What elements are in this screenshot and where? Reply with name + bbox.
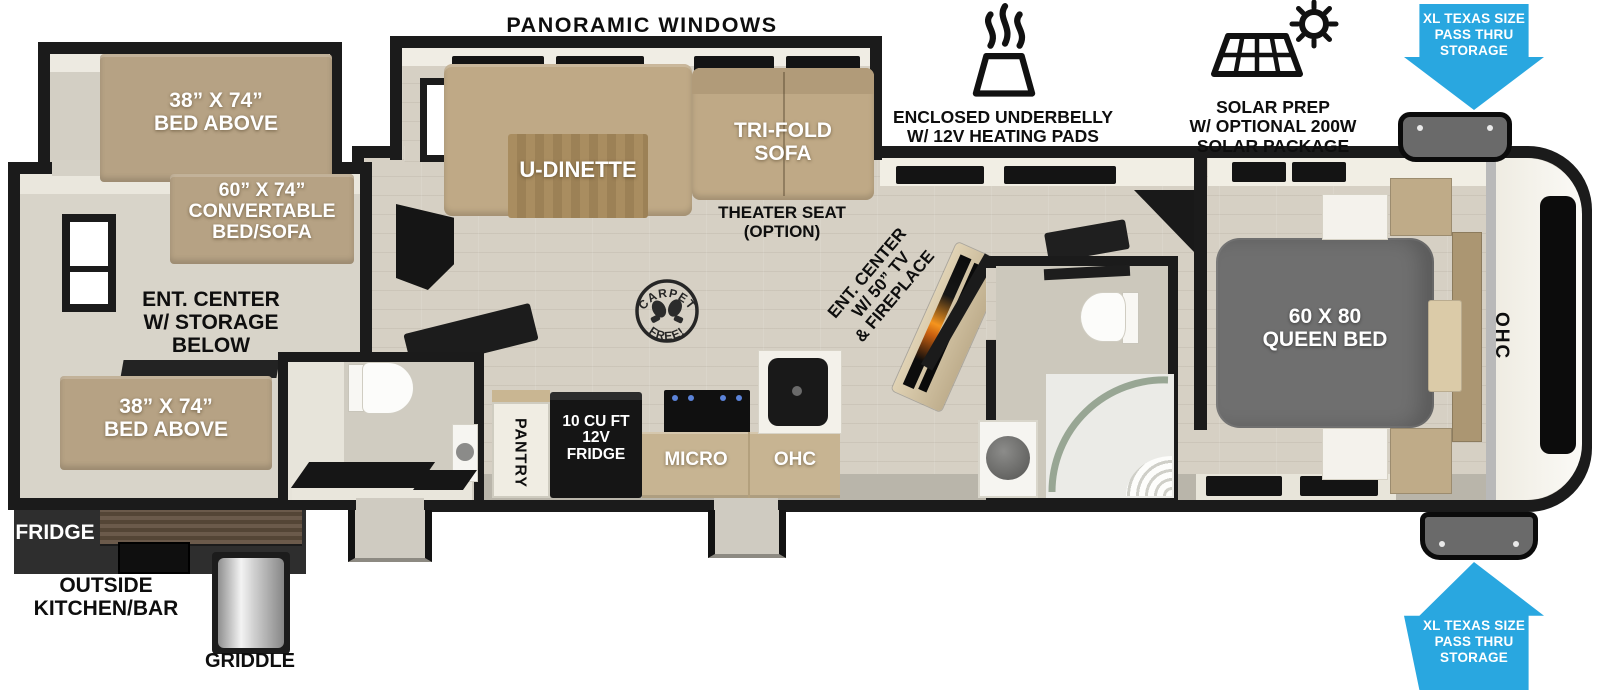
faucet — [792, 386, 802, 396]
entry-steps — [348, 510, 432, 562]
carpet-free-stamp-icon: CARPET FREE! — [628, 272, 706, 350]
toilet-bowl — [1080, 292, 1126, 342]
window — [896, 166, 984, 184]
solar-prep-icon — [1206, 0, 1346, 100]
pantry: PANTRY — [492, 402, 550, 498]
fridge-12v: 10 CU FT 12V FRIDGE — [550, 392, 642, 498]
burner — [720, 395, 726, 401]
burner — [736, 395, 742, 401]
ent-center-storage-label: ENT. CENTER W/ STORAGE BELOW — [118, 288, 304, 357]
floorplan-canvas: FRIDGE OUTSIDE KITCHEN/BAR GRIDDLE 38” X… — [0, 0, 1600, 693]
micro-label: MICRO — [646, 450, 746, 471]
washer-drum — [986, 436, 1030, 480]
window — [1292, 162, 1346, 182]
sun-rays — [1292, 2, 1336, 46]
pass-thru-arrow-down-icon: XL TEXAS SIZE PASS THRU STORAGE — [1404, 4, 1544, 110]
rivet — [1513, 541, 1519, 547]
u-dinette-label: U-DINETTE — [486, 158, 670, 182]
bunk-bed-top: 38” X 74” BED ABOVE — [100, 54, 332, 182]
rivet — [1487, 125, 1493, 131]
shower — [1046, 374, 1174, 498]
window — [62, 214, 116, 312]
outside-fridge-label: FRIDGE — [8, 522, 102, 545]
burner — [672, 395, 678, 401]
griddle-label: GRIDDLE — [192, 650, 308, 672]
pantry-label: PANTRY — [511, 410, 529, 496]
panoramic-windows-title: PANORAMIC WINDOWS — [477, 14, 807, 38]
bathroom-door-opening — [986, 268, 996, 340]
theater-seat-option-label: THEATER SEAT (OPTION) — [690, 204, 874, 241]
rivet — [1417, 125, 1423, 131]
outside-grill — [118, 542, 190, 574]
bedroom-cabinet — [1322, 428, 1388, 480]
kitchen-ohc-label: OHC — [750, 450, 840, 471]
kitchen-sink — [768, 358, 828, 426]
burner — [688, 395, 694, 401]
window — [1004, 166, 1116, 184]
bedroom-ohc-cabinet — [1390, 428, 1452, 494]
bed-bench — [1428, 300, 1462, 392]
outside-wood-counter — [100, 504, 302, 544]
bedroom-ohc-label: OHC — [1490, 300, 1511, 372]
toilet-bowl — [362, 362, 414, 414]
pass-thru-storage-door — [1420, 512, 1538, 560]
window — [1232, 162, 1286, 182]
bunk-bed-bottom: 38” X 74” BED ABOVE — [60, 376, 272, 470]
convertible-bed-sofa: 60” X 74” CONVERTABLE BED/SOFA — [170, 174, 354, 264]
queen-bed: 60 X 80 QUEEN BED — [1216, 238, 1434, 428]
solar-prep-label: SOLAR PREP W/ OPTIONAL 200W SOLAR PACKAG… — [1156, 98, 1390, 156]
bath-mat — [291, 462, 435, 488]
bedroom-ohc-cabinet — [1390, 178, 1452, 236]
pass-thru-storage-door — [1398, 112, 1512, 162]
stove — [664, 390, 750, 434]
bedroom-cabinet — [1322, 194, 1388, 240]
kitchen-counter: MICRO OHC — [642, 432, 840, 498]
rivet — [1439, 541, 1445, 547]
underbelly-label: ENCLOSED UNDERBELLY W/ 12V HEATING PADS — [868, 108, 1138, 147]
svg-text:FREE!: FREE! — [646, 324, 687, 343]
tri-fold-sofa: TRI-FOLD SOFA — [692, 68, 874, 200]
washer-drum — [456, 443, 474, 461]
entry-steps — [708, 510, 786, 558]
window-mullion — [70, 266, 108, 272]
bedroom-partition-wall — [1194, 158, 1207, 430]
outside-kitchen-label: OUTSIDE KITCHEN/BAR — [0, 574, 212, 620]
pass-thru-arrow-up-icon: XL TEXAS SIZE PASS THRU STORAGE — [1404, 562, 1544, 690]
washer — [978, 420, 1038, 498]
griddle — [212, 552, 290, 654]
heating-pads-icon — [952, 2, 1056, 106]
front-cap-window — [1540, 196, 1576, 454]
griddle-surface — [218, 558, 284, 648]
window — [1206, 476, 1282, 496]
